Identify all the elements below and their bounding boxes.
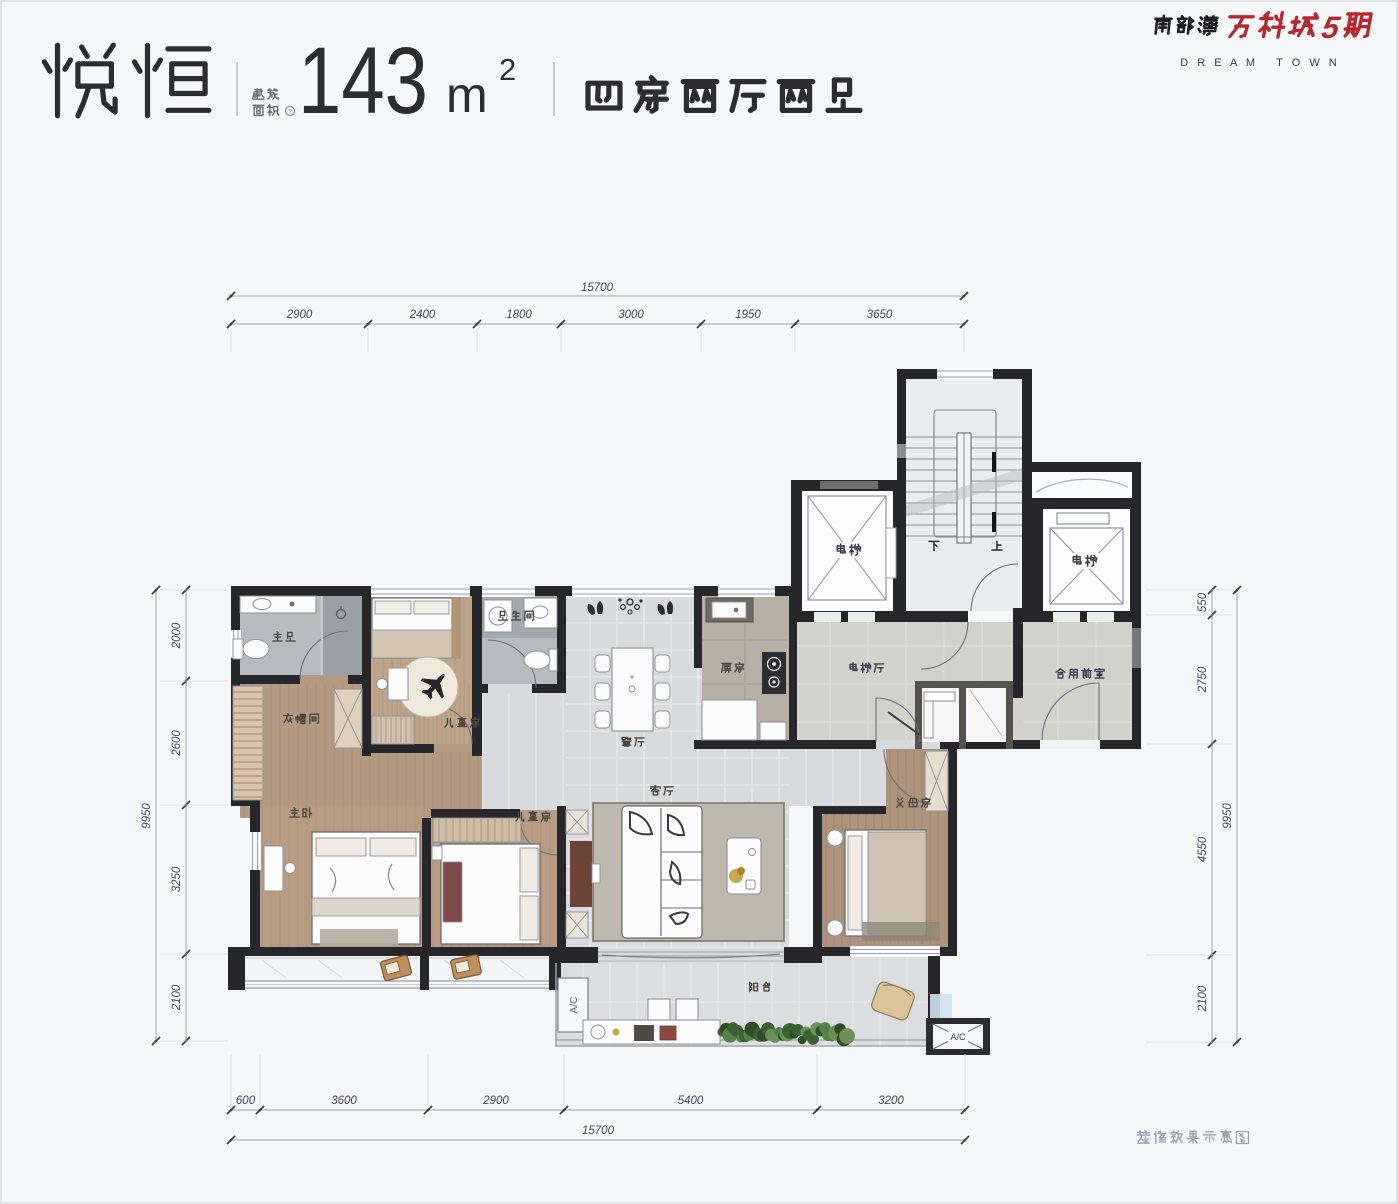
svg-text:2900: 2900 xyxy=(482,1095,509,1107)
svg-text:3200: 3200 xyxy=(878,1095,904,1107)
svg-text:3650: 3650 xyxy=(867,309,893,321)
svg-text:3000: 3000 xyxy=(618,309,644,321)
svg-text:2100: 2100 xyxy=(1197,985,1209,1012)
svg-text:?: ? xyxy=(288,109,292,116)
svg-text:2400: 2400 xyxy=(409,309,436,321)
svg-text:5400: 5400 xyxy=(678,1095,704,1107)
svg-text:9950: 9950 xyxy=(141,803,153,829)
svg-text:2000: 2000 xyxy=(171,622,183,649)
svg-text:4550: 4550 xyxy=(1197,836,1209,862)
svg-text:2900: 2900 xyxy=(286,309,313,321)
svg-text:3600: 3600 xyxy=(331,1095,357,1107)
svg-text:1950: 1950 xyxy=(735,309,761,321)
svg-text:2750: 2750 xyxy=(1197,666,1209,693)
svg-text:A/C: A/C xyxy=(569,997,580,1014)
svg-text:A/C: A/C xyxy=(950,1032,966,1042)
svg-text:1800: 1800 xyxy=(506,309,532,321)
svg-text:m: m xyxy=(446,67,488,123)
svg-text:2: 2 xyxy=(499,52,516,87)
svg-text:3250: 3250 xyxy=(171,866,183,892)
svg-text:15700: 15700 xyxy=(581,282,614,294)
svg-text:15700: 15700 xyxy=(582,1125,615,1137)
svg-text:550: 550 xyxy=(1197,592,1209,612)
svg-text:600: 600 xyxy=(236,1095,256,1107)
svg-text:D R E A M T O W N: D R E A M T O W N xyxy=(1180,57,1339,69)
svg-text:2100: 2100 xyxy=(171,984,183,1011)
svg-text:143: 143 xyxy=(298,28,428,134)
svg-text:2600: 2600 xyxy=(171,730,183,757)
svg-text:9950: 9950 xyxy=(1222,803,1234,829)
